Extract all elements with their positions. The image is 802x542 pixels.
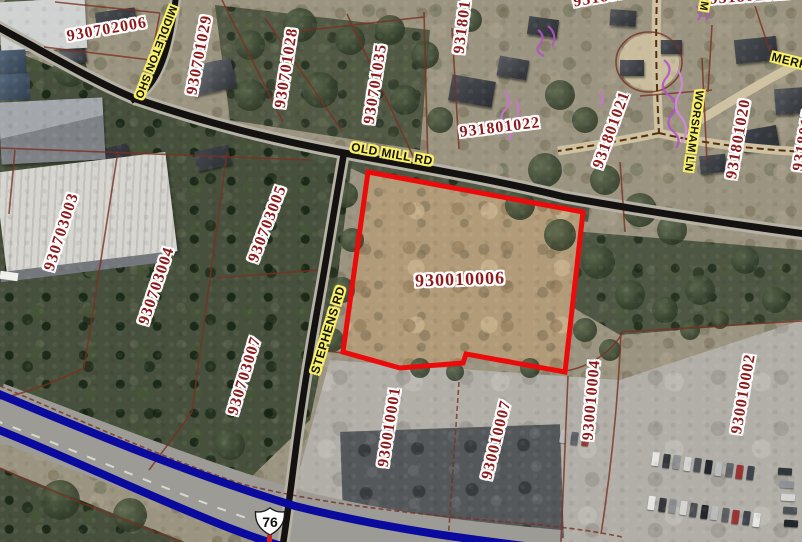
- selected-parcel-930010006[interactable]: [343, 172, 583, 372]
- route-76-shield: 76: [253, 507, 287, 537]
- road-stephens: [283, 153, 344, 542]
- gis-map-canvas[interactable]: 9307020069307010299307010289307010359318…: [0, 0, 802, 542]
- shield-tick-mark: [267, 535, 272, 542]
- selected-parcel-outline: [343, 172, 583, 372]
- route-number: 76: [253, 514, 287, 537]
- map-overlay: [0, 0, 802, 542]
